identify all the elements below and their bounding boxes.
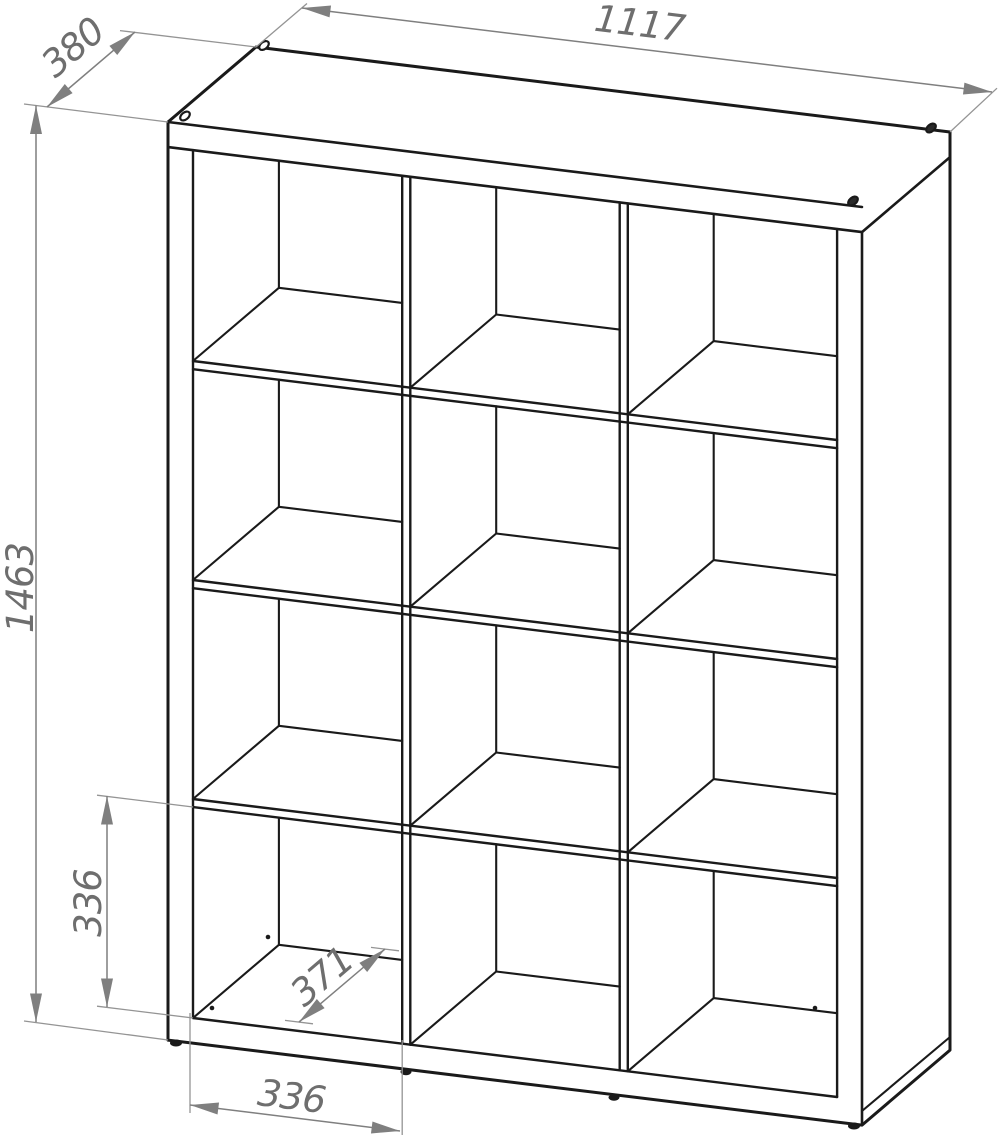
outer-silhouette [168, 47, 950, 1125]
shelving-unit [168, 39, 950, 1129]
ext-height-bottom [24, 1021, 168, 1040]
cell-interior-lines [193, 161, 837, 1072]
cell-r3c2-interior [410, 625, 619, 825]
cell-r3c1-interior [193, 599, 402, 799]
cell-r2c2-interior [410, 406, 619, 606]
screw-dot-2 [210, 1006, 215, 1011]
cell-r1c3-interior [628, 214, 837, 414]
cell-r2c3-interior [628, 433, 837, 633]
shelf3-bottom-edge [193, 807, 837, 886]
shelf2-top-edge [193, 580, 837, 659]
label-width: 1117 [592, 0, 688, 51]
top-panel-front-top-edge [168, 122, 862, 207]
shelf2-bottom-edge [193, 588, 837, 667]
ext-depth-rear [120, 31, 256, 47]
shelf1-bottom-edge [193, 369, 837, 448]
ext-width-right [950, 88, 997, 132]
cell-r2c1-interior [193, 380, 402, 580]
shelf3-top-edge [193, 799, 837, 878]
top-panel-front-bottom-edge [168, 147, 862, 232]
ext-width-left [256, 4, 307, 48]
cell-r1c2-interior [410, 187, 619, 387]
top-panel-right-bottom-edge [862, 157, 950, 232]
dimensions: 1117 380 1463 336 371 336 [0, 0, 997, 1135]
right-side-panel [862, 232, 950, 1125]
label-cell-height: 336 [67, 869, 110, 937]
ext-cellheight-top [97, 795, 193, 807]
extension-lines [24, 4, 997, 1135]
cell-r4c3-interior [628, 871, 837, 1071]
label-height: 1463 [0, 543, 42, 633]
cell-r1c1-interior [193, 161, 402, 361]
screw-hole-rear-right [925, 122, 938, 134]
ext-height-top [24, 104, 168, 122]
cell-r3c3-interior [628, 652, 837, 852]
cell-r4c2-interior [410, 844, 619, 1044]
right-side-foot-line [862, 1037, 950, 1111]
ext-celldepth-front [285, 1020, 313, 1023]
isometric-shelving-diagram: 1117 380 1463 336 371 336 [0, 0, 1000, 1135]
bookcase-technical-drawing: 1117 380 1463 336 371 336 [0, 0, 1000, 1135]
screw-dot-1 [266, 935, 271, 940]
top-panel-screw-holes [179, 39, 938, 207]
foot-left [170, 1040, 182, 1047]
foot-mid2 [609, 1094, 620, 1100]
dimension-lines [36, 8, 992, 1131]
foot-right [848, 1123, 860, 1130]
top-panel [168, 122, 950, 232]
label-cell-width: 336 [255, 1071, 327, 1122]
shelf1-top-edge [193, 361, 837, 440]
ext-cellheight-bottom [97, 1006, 193, 1018]
screw-dot-3 [813, 1006, 818, 1011]
label-cell-depth: 371 [282, 938, 361, 1015]
label-depth: 380 [33, 9, 112, 86]
front-vertical-edges [193, 150, 837, 1097]
